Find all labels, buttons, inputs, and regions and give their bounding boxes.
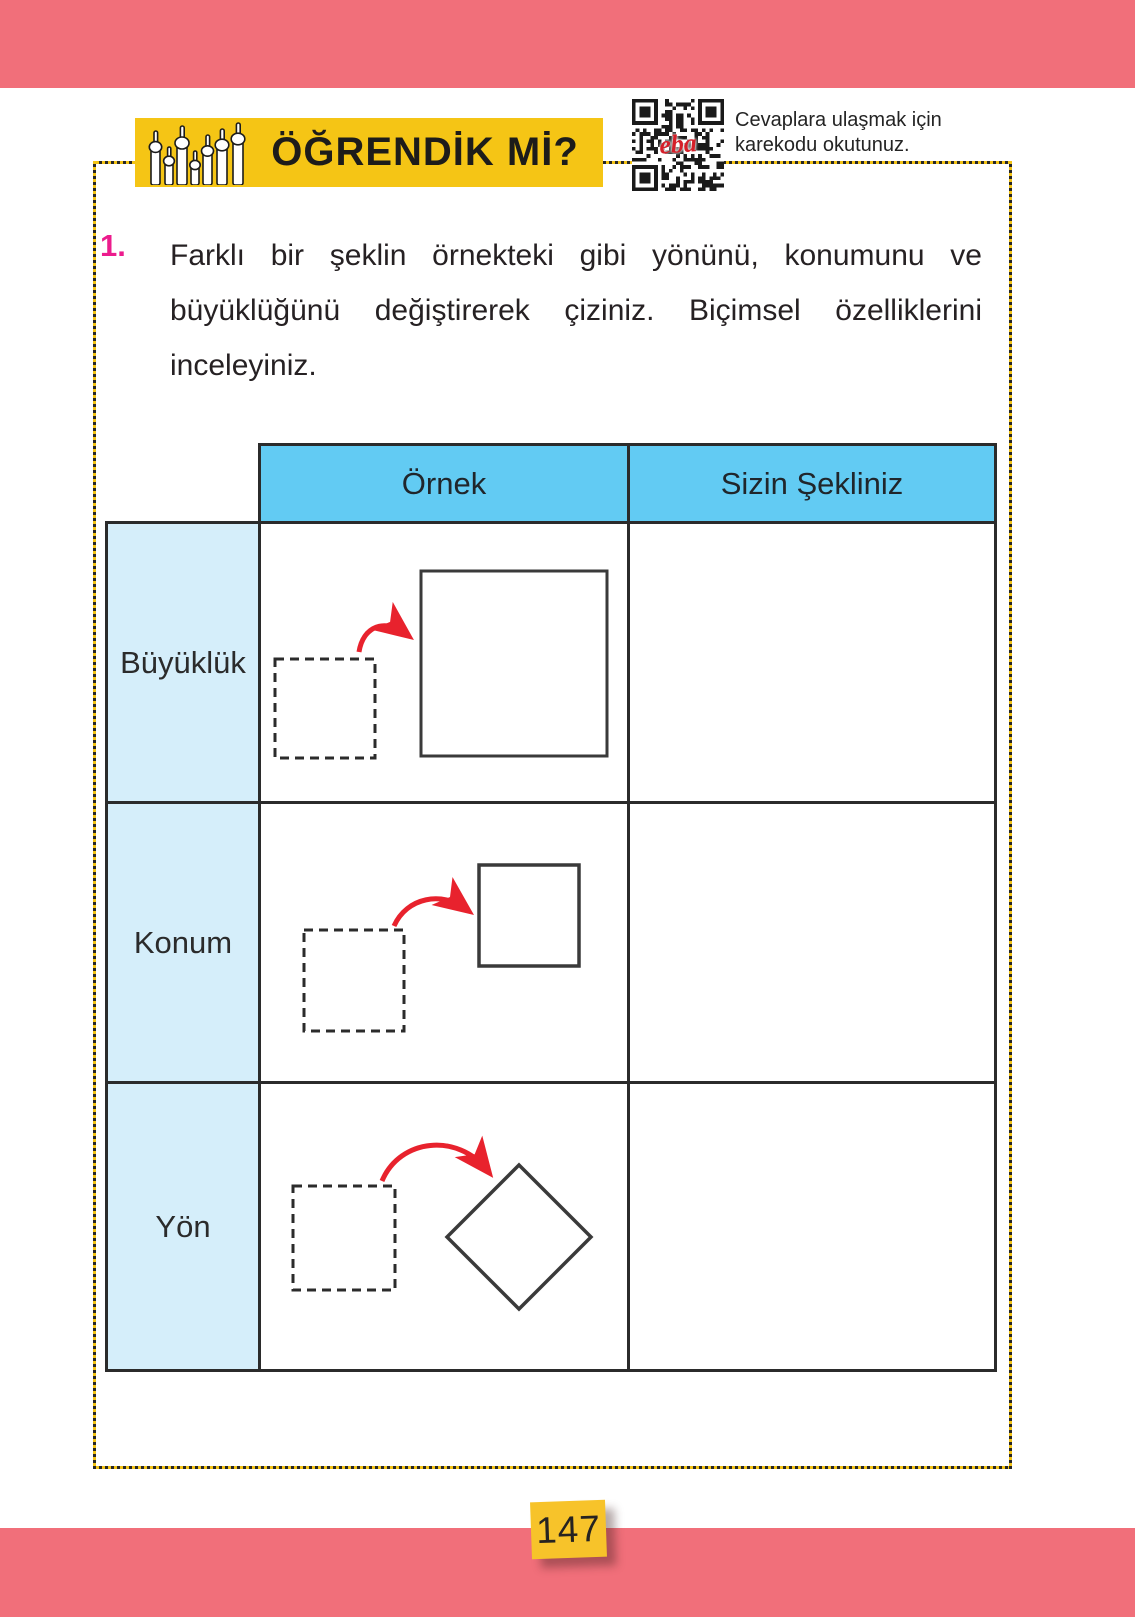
qr-caption-line1: Cevaplara ulaşmak için xyxy=(735,108,1015,133)
question-line-1: Farklı bir şeklin örnekteki gibi yönünü,… xyxy=(170,228,982,283)
question-line-2: büyüklüğünü değiştirerek çiziniz. Biçims… xyxy=(170,283,982,338)
section-title: ÖĞRENDİK Mİ? xyxy=(257,130,603,175)
ornek-cell-buyukluk xyxy=(258,521,630,804)
answer-cell-yon[interactable] xyxy=(627,1081,997,1372)
dotted-frame-left xyxy=(93,161,96,1469)
top-pink-bar xyxy=(0,0,1135,88)
qr-caption-line2: karekodu okutunuz. xyxy=(735,133,1015,158)
table-header-sizin-sekliniz: Sizin Şekliniz xyxy=(627,443,997,524)
answer-cell-buyukluk[interactable] xyxy=(627,521,997,804)
answer-cell-konum[interactable] xyxy=(627,801,997,1084)
page-number: 147 xyxy=(535,1507,601,1551)
eba-logo: eba xyxy=(658,128,698,161)
workbook-page: { "page": { "number": "147" }, "header":… xyxy=(0,0,1135,1617)
question-line-3: inceleyiniz. xyxy=(170,338,982,393)
qr-caption: Cevaplara ulaşmak için karekodu okutunuz… xyxy=(735,108,1015,158)
question-number: 1. xyxy=(100,228,126,264)
raised-hands-icon xyxy=(139,121,257,185)
row-label-yon: Yön xyxy=(105,1081,261,1372)
section-banner: ÖĞRENDİK Mİ? xyxy=(135,118,603,187)
qr-code: eba xyxy=(632,98,724,192)
page-number-badge: 147 xyxy=(530,1500,607,1560)
question-text: Farklı bir şeklin örnekteki gibi yönünü,… xyxy=(170,228,982,393)
ornek-cell-konum xyxy=(258,801,630,1084)
ornek-cell-yon xyxy=(258,1081,630,1372)
dotted-frame-right xyxy=(1009,161,1012,1469)
row-label-buyukluk: Büyüklük xyxy=(105,521,261,804)
row-label-konum: Konum xyxy=(105,801,261,1084)
dotted-frame-bottom xyxy=(93,1466,1012,1469)
table-header-ornek: Örnek xyxy=(258,443,630,524)
